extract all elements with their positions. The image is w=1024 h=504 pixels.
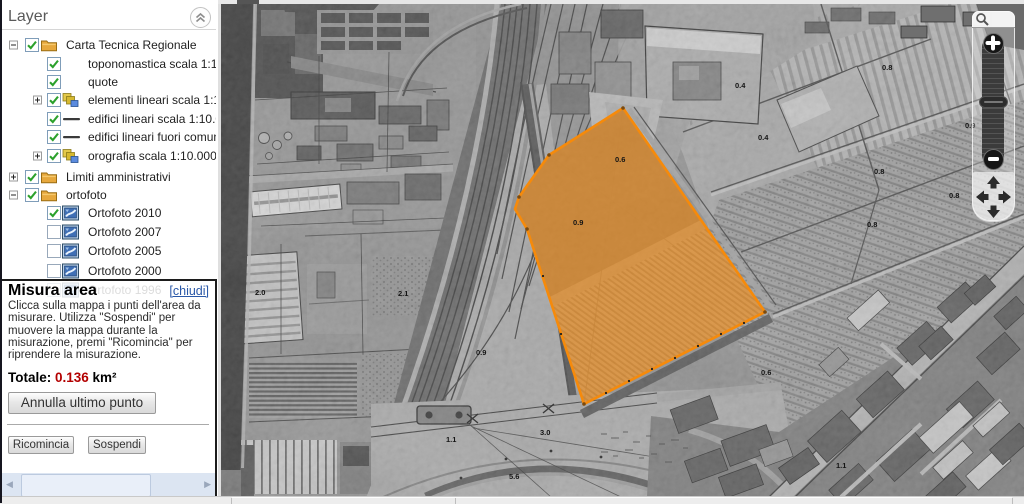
svg-text:0.8: 0.8 — [874, 167, 884, 176]
svg-text:0.6: 0.6 — [761, 368, 771, 377]
svg-text:0.4: 0.4 — [758, 133, 769, 142]
svg-text:2.1: 2.1 — [398, 289, 408, 298]
svg-text:5.6: 5.6 — [509, 472, 519, 481]
svg-text:0.9: 0.9 — [476, 348, 486, 357]
svg-text:1.1: 1.1 — [446, 435, 456, 444]
svg-text:0.8: 0.8 — [949, 191, 959, 200]
svg-text:1.1: 1.1 — [836, 461, 846, 470]
svg-text:2.0: 2.0 — [255, 288, 265, 297]
svg-text:0.8: 0.8 — [867, 220, 877, 229]
svg-text:0.6: 0.6 — [615, 155, 625, 164]
svg-text:0.9: 0.9 — [573, 218, 583, 227]
svg-text:0.8: 0.8 — [882, 63, 892, 72]
svg-text:0.4: 0.4 — [735, 81, 746, 90]
svg-text:3.0: 3.0 — [540, 428, 550, 437]
